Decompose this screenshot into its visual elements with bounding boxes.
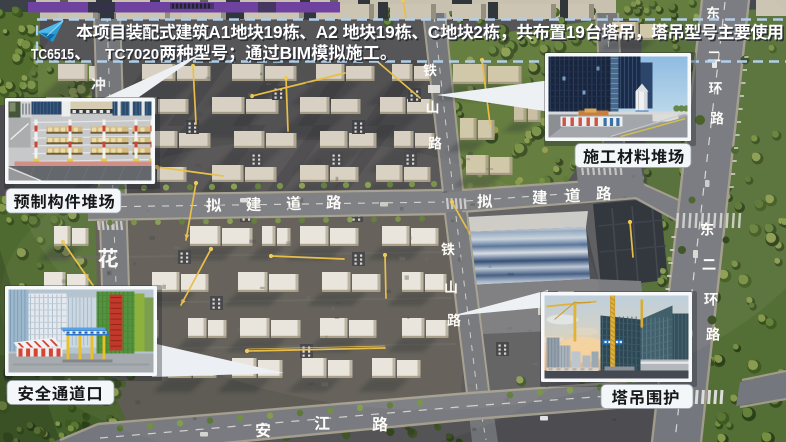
svg-text:TC7020: TC7020 [105,46,159,63]
svg-text:19: 19 [566,22,585,42]
svg-text:TC6515: TC6515 [31,46,74,63]
svg-text:A1: A1 [208,22,230,42]
svg-text:A2: A2 [316,22,338,42]
svg-text:2: 2 [473,22,483,42]
svg-text:C: C [428,22,440,42]
svg-text:19: 19 [376,22,395,42]
svg-text:BIM: BIM [280,43,312,63]
svg-text:19: 19 [264,22,283,42]
